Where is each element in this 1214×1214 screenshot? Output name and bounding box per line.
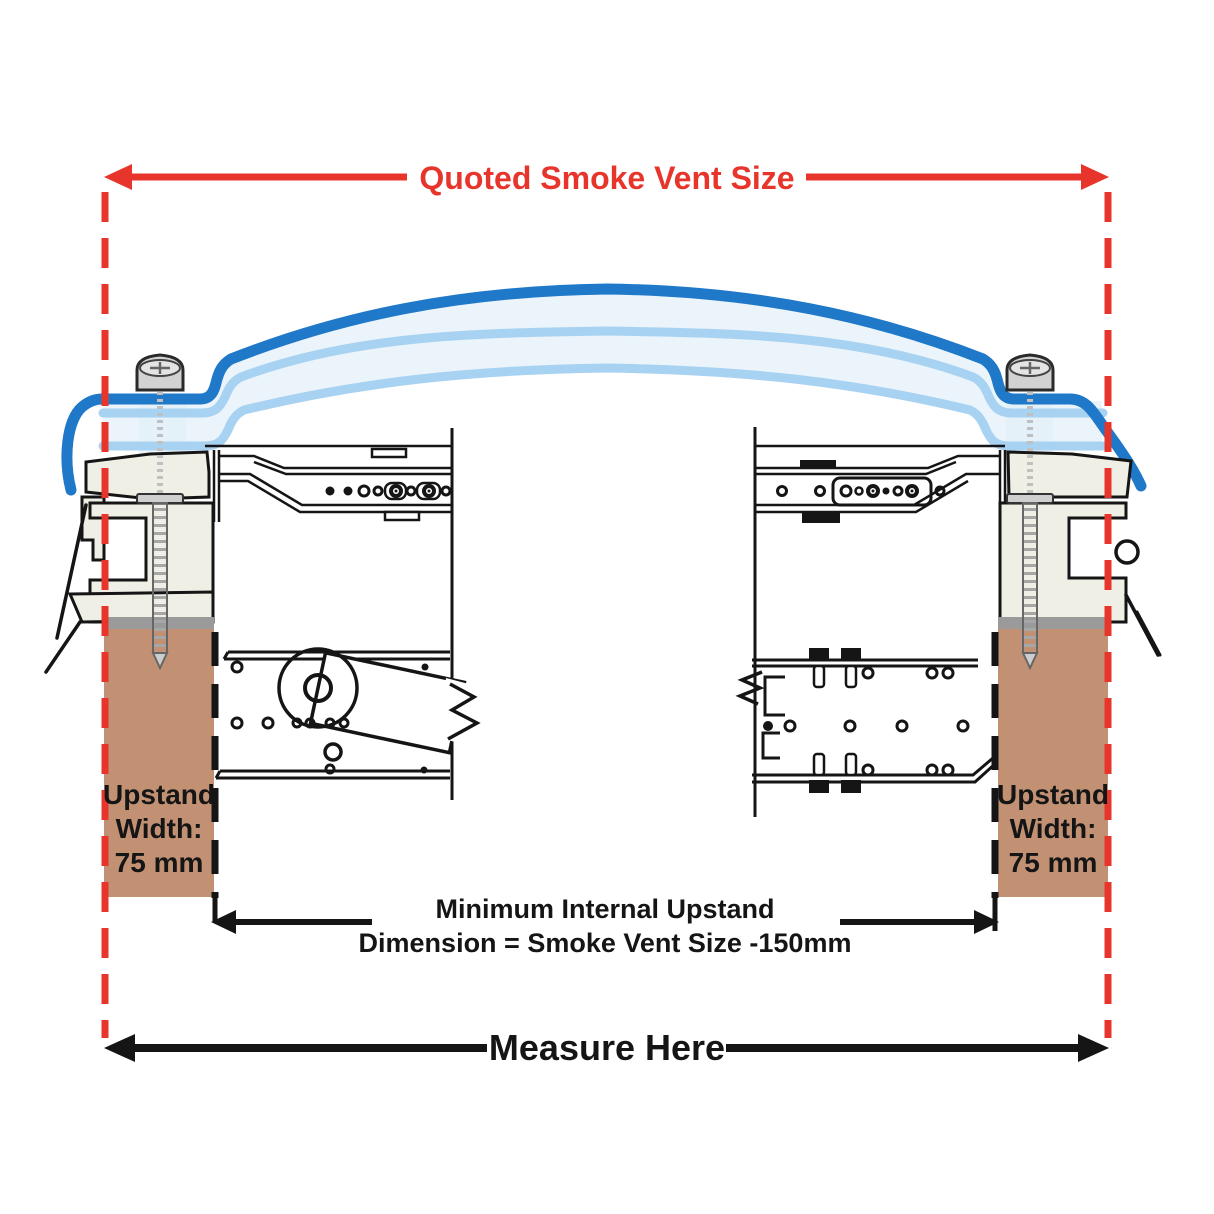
arrowhead-right-icon	[1081, 164, 1109, 190]
arrowhead-left-icon	[104, 164, 132, 190]
right-flashing-line-lower	[1137, 612, 1160, 655]
measure-here-label: Measure Here	[489, 1027, 725, 1068]
upstand-right-line3: 75 mm	[1009, 847, 1098, 878]
right-sill	[998, 617, 1108, 629]
right-frame-section	[740, 427, 1160, 897]
right-lower-frame	[740, 648, 996, 793]
dome-glazing	[67, 289, 1141, 497]
screw-washer	[1007, 494, 1053, 503]
right-slider-rail	[755, 427, 1005, 817]
frame-break-symbol	[740, 672, 762, 704]
upstand-left-line2: Width:	[116, 813, 203, 844]
left-flashing-line-lower	[46, 622, 80, 672]
upstand-left-line3: 75 mm	[115, 847, 204, 878]
upstand-width-label-right: Upstand Width: 75 mm	[997, 779, 1109, 878]
measure-here-dimension: Measure Here	[104, 1027, 1109, 1068]
left-frame-section	[46, 428, 484, 897]
upstand-right-line1: Upstand	[997, 779, 1109, 810]
arm-break-mask	[440, 678, 484, 748]
upstand-width-label-left: Upstand Width: 75 mm	[103, 779, 215, 878]
right-flashing-line	[1126, 595, 1158, 655]
right-flashing-hook	[1116, 541, 1138, 563]
internal-dimension-label-line1: Minimum Internal Upstand	[435, 894, 774, 924]
arrowhead-right-icon	[1078, 1034, 1109, 1062]
smoke-vent-diagram: Minimum Internal Upstand Dimension = Smo…	[0, 0, 1214, 1214]
screw-washer	[137, 494, 183, 503]
arrowhead-left-icon	[104, 1034, 135, 1062]
quoted-size-label: Quoted Smoke Vent Size	[419, 160, 794, 196]
internal-dimension-label-line2: Dimension = Smoke Vent Size -150mm	[359, 928, 852, 958]
upstand-right-line2: Width:	[1010, 813, 1097, 844]
left-slider-rail	[214, 449, 452, 522]
left-actuator-plate	[216, 649, 484, 778]
upstand-left-line1: Upstand	[103, 779, 215, 810]
